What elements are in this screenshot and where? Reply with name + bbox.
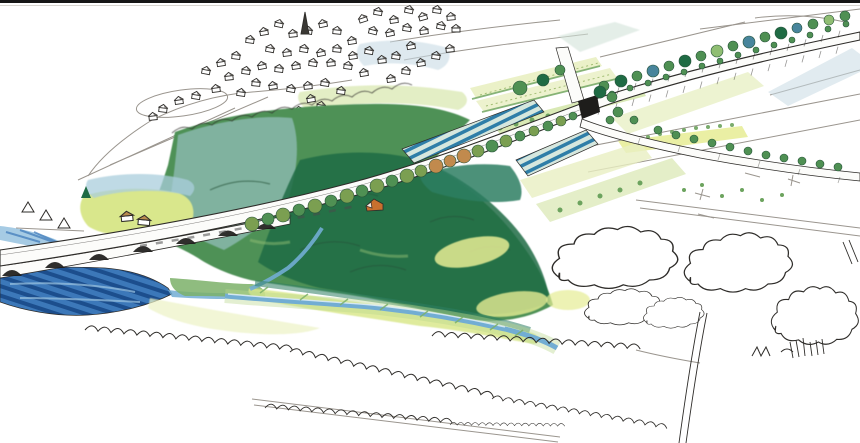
top-border: [0, 0, 860, 6]
sketch-canvas: [0, 0, 860, 443]
landscape-sketch: [0, 0, 860, 443]
